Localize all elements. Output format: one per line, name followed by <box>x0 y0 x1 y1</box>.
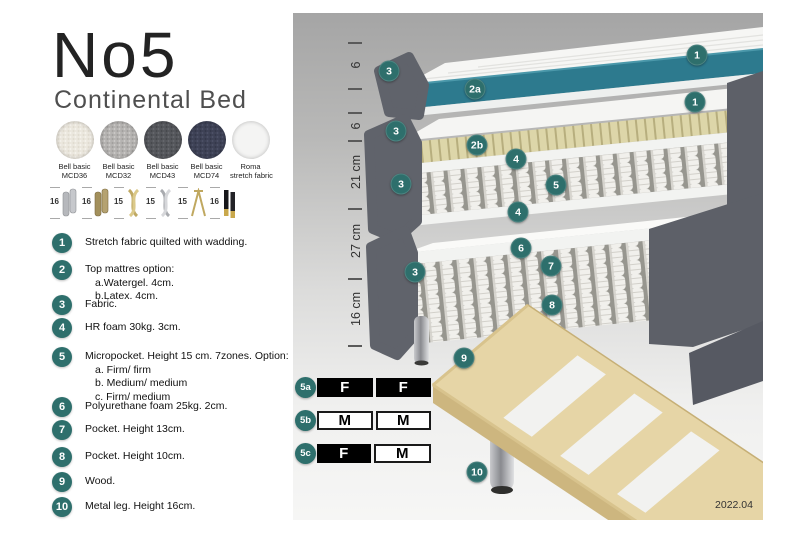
callout-2b: 2b <box>467 135 488 156</box>
callout-6: 6 <box>511 238 532 259</box>
black-gold-leg-icon <box>221 188 240 218</box>
callout-5: 5 <box>546 175 567 196</box>
callout-8: 8 <box>542 295 563 316</box>
fabric-swatch-image <box>232 121 270 159</box>
callout-3b: 3 <box>386 121 407 142</box>
twisted-silver-leg-icon <box>157 188 176 218</box>
fabric-swatch: Roma stretch fabric <box>230 121 271 180</box>
firmness-row-badge: 5c <box>295 443 316 464</box>
legend-text: HR foam 30kg. 3cm. <box>85 321 181 335</box>
fabric-swatch-code: MCD43 <box>142 171 183 180</box>
legend-number-badge: 5 <box>52 347 72 367</box>
callout-4: 4 <box>506 149 527 170</box>
legend-number-badge: 1 <box>52 233 72 253</box>
legend-item-5: 5 Micropocket. Height 15 cm. 7zones. Opt… <box>52 347 289 405</box>
legend-text: Top mattres option: <box>85 263 174 277</box>
legend-text: Metal leg. Height 16cm. <box>85 500 195 514</box>
leg-option-cylinder-silver: 16 <box>50 186 82 220</box>
legend-text: Stretch fabric quilted with wadding. <box>85 236 247 250</box>
leg-height: 15 <box>114 197 123 206</box>
legend-text: Polyurethane foam 25kg. 2cm. <box>85 400 227 414</box>
leg-option-twisted-gold: 15 <box>114 186 146 220</box>
leg-height: 15 <box>178 197 187 206</box>
callout-4b: 4 <box>508 202 529 223</box>
fabric-swatch: Bell basic MCD74 <box>186 121 227 180</box>
firmness-cell: F <box>317 444 371 463</box>
legend-item-8: 8 Pocket. Height 10cm. <box>52 447 185 467</box>
ruler-tick <box>348 278 362 280</box>
legend-item-1: 1 Stretch fabric quilted with wadding. <box>52 233 247 253</box>
legend-item-4: 4 HR foam 30kg. 3cm. <box>52 318 181 338</box>
fabric-swatch-code: MCD32 <box>98 171 139 180</box>
fabric-swatch-name: Roma <box>230 162 271 171</box>
fabric-swatch-name: Bell basic <box>142 162 183 171</box>
legend-number-badge: 6 <box>52 397 72 417</box>
legend-number-badge: 9 <box>52 472 72 492</box>
cylinder-bronze-leg-icon <box>93 188 112 218</box>
leg-option-hairpin: 15 <box>178 186 210 220</box>
firmness-cell: M <box>317 411 373 430</box>
fabric-swatch-code: stretch fabric <box>230 171 271 180</box>
fabric-swatch: Bell basic MCD32 <box>98 121 139 180</box>
ruler-tick <box>348 208 362 210</box>
legend-item-10: 10 Metal leg. Height 16cm. <box>52 497 195 517</box>
ruler-tick <box>348 88 362 90</box>
firmness-row-badge: 5a <box>295 377 316 398</box>
page: { "header": { "title": "No5", "subtitle"… <box>0 0 800 533</box>
leg-options: 16 16 15 15 15 16 <box>50 186 242 220</box>
legend-text: Fabric. <box>85 298 117 312</box>
legend-text: Micropocket. Height 15 cm. 7zones. Optio… <box>85 350 289 364</box>
legend-item-6: 6 Polyurethane foam 25kg. 2cm. <box>52 397 227 417</box>
fabric-swatch-code: MCD36 <box>54 171 95 180</box>
ruler-tick <box>348 42 362 44</box>
fabric-swatch-image <box>56 121 94 159</box>
legend-text: Pocket. Height 10cm. <box>85 450 185 464</box>
fabric-swatch-image <box>144 121 182 159</box>
firmness-row-5a: F F <box>317 378 431 397</box>
measurement-label: 6 <box>349 111 363 141</box>
hairpin-leg-icon <box>189 188 208 218</box>
fabric-swatch-image <box>188 121 226 159</box>
fabric-swatch-name: Bell basic <box>54 162 95 171</box>
ruler-tick <box>348 345 362 347</box>
legend-number-badge: 7 <box>52 420 72 440</box>
callout-2a: 2a <box>465 79 486 100</box>
callout-3d: 3 <box>405 262 426 283</box>
legend-number-badge: 2 <box>52 260 72 280</box>
leg-option-cylinder-bronze: 16 <box>82 186 114 220</box>
legend-text: Wood. <box>85 475 115 489</box>
firmness-cell: F <box>376 378 432 397</box>
fabric-swatches: Bell basic MCD36 Bell basic MCD32 Bell b… <box>54 121 271 180</box>
firmness-row-badge: 5b <box>295 410 316 431</box>
fabric-swatch-code: MCD74 <box>186 171 227 180</box>
callout-3c: 3 <box>391 174 412 195</box>
callout-1b: 1 <box>685 92 706 113</box>
leg-option-twisted-silver: 15 <box>146 186 178 220</box>
firmness-cell: F <box>317 378 373 397</box>
page-title: No5 <box>52 18 178 92</box>
firmness-cell: M <box>376 411 432 430</box>
legend-number-badge: 3 <box>52 295 72 315</box>
cylinder-silver-leg-icon <box>61 188 80 218</box>
measurement-label: 27 cm <box>349 228 363 258</box>
legend-subtext: b. Medium/ medium <box>95 377 289 391</box>
legend-number-badge: 8 <box>52 447 72 467</box>
fabric-swatch-name: Bell basic <box>98 162 139 171</box>
metal-leg-back <box>414 316 429 366</box>
fabric-swatch-name: Bell basic <box>186 162 227 171</box>
leg-height: 15 <box>146 197 155 206</box>
firmness-cell: M <box>374 444 432 463</box>
legend-number-badge: 4 <box>52 318 72 338</box>
firmness-row-5b: M M <box>317 411 431 430</box>
fabric-swatch-image <box>100 121 138 159</box>
measurement-label: 16 cm <box>349 296 363 326</box>
legend-subtext: a.Watergel. 4cm. <box>95 277 174 291</box>
measurement-label: 6 <box>349 50 363 80</box>
legend-item-3: 3 Fabric. <box>52 295 117 315</box>
callout-3: 3 <box>379 61 400 82</box>
firmness-row-5c: F M <box>317 444 431 463</box>
callout-1: 1 <box>687 45 708 66</box>
twisted-gold-leg-icon <box>125 188 144 218</box>
legend-item-9: 9 Wood. <box>52 472 115 492</box>
leg-option-black-gold: 16 <box>210 186 242 220</box>
callout-10: 10 <box>467 462 488 483</box>
leg-height: 16 <box>210 197 219 206</box>
bed-diagram-panel: 6 6 21 cm 27 cm 16 cm 1 1 2a 2b 3 3 3 3 … <box>293 13 763 520</box>
leg-height: 16 <box>50 197 59 206</box>
legend-item-7: 7 Pocket. Height 13cm. <box>52 420 185 440</box>
leg-height: 16 <box>82 197 91 206</box>
measurement-label: 21 cm <box>349 159 363 189</box>
version-date: 2022.04 <box>715 499 753 511</box>
callout-9: 9 <box>454 348 475 369</box>
callout-7: 7 <box>541 256 562 277</box>
legend-text: Pocket. Height 13cm. <box>85 423 185 437</box>
legend-number-badge: 10 <box>52 497 72 517</box>
page-subtitle: Continental Bed <box>54 86 247 115</box>
legend-subtext: a. Firm/ firm <box>95 364 289 378</box>
fabric-swatch: Bell basic MCD43 <box>142 121 183 180</box>
fabric-swatch: Bell basic MCD36 <box>54 121 95 180</box>
